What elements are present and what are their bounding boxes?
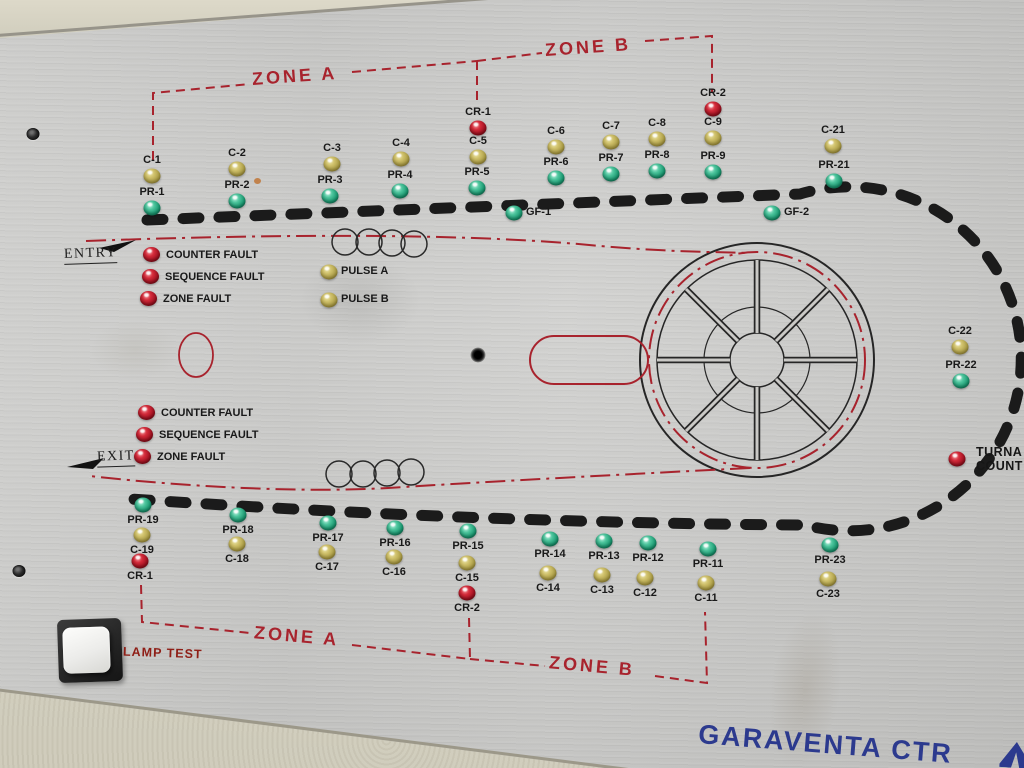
led-pr-8-lamp: [649, 164, 666, 179]
sticker-speck: [254, 178, 261, 184]
turnaround-wheel: [640, 243, 874, 477]
led-pr-3-lamp: [322, 189, 339, 204]
led-gf-2-lamp: [764, 206, 781, 221]
entry-label: ENTRY: [64, 245, 118, 265]
led-c-8-lamp: [649, 132, 666, 147]
led-c-11-lamp: [698, 576, 715, 591]
led-pr-2-lamp: [229, 194, 246, 209]
entry-fault-zone: ZONE FAULT: [140, 291, 231, 306]
led-c-15-label: C-15: [455, 572, 479, 584]
led-c-19-lamp: [134, 528, 151, 543]
entry-fault-sequence: SEQUENCE FAULT: [142, 269, 264, 284]
led-c-7-lamp: [603, 135, 620, 150]
led-cr-2-bottom-lamp: [459, 586, 476, 601]
led-c-17-lamp: [319, 545, 336, 560]
led-pulse-a-lamp: [321, 265, 338, 280]
led-pr-23-label: PR-23: [814, 554, 845, 566]
led-pr-15-lamp: [460, 524, 477, 539]
led-c-16-label: C-16: [382, 566, 406, 578]
led-c-3-label: C-3: [323, 142, 341, 154]
led-cr-2-top-lamp: [705, 102, 722, 117]
led-pr-7-lamp: [603, 167, 620, 182]
led-c-7-label: C-7: [602, 120, 620, 132]
led-c-13-lamp: [594, 568, 611, 583]
led-pr-17-lamp: [320, 516, 337, 531]
exit-sequence-fault-label: SEQUENCE FAULT: [159, 429, 258, 441]
led-c-6-lamp: [548, 140, 565, 155]
led-pr-5-lamp: [469, 181, 486, 196]
exit-zone-fault-lamp: [134, 449, 151, 464]
led-c-21-label: C-21: [821, 124, 845, 136]
led-pr-3-label: PR-3: [317, 174, 342, 186]
led-c-9-label: C-9: [704, 116, 722, 128]
led-pr-2-label: PR-2: [224, 179, 249, 191]
led-c-22-lamp: [952, 340, 969, 355]
led-c-5-lamp: [470, 150, 487, 165]
led-c-1-label: C-1: [143, 154, 161, 166]
led-pr-4-lamp: [392, 184, 409, 199]
entry-sequence-fault-lamp: [142, 269, 159, 284]
led-pr-7-label: PR-7: [598, 152, 623, 164]
led-pr-9-lamp: [705, 165, 722, 180]
led-c-15-lamp: [459, 556, 476, 571]
led-c-14-label: C-14: [536, 582, 560, 594]
exit-fault-zone: ZONE FAULT: [134, 449, 225, 464]
zone-brackets: [141, 36, 712, 683]
led-c-3-lamp: [324, 157, 341, 172]
led-c-4-lamp: [393, 152, 410, 167]
turnaround-counter-label: TURNA COUNT: [976, 445, 1023, 473]
led-c-13-label: C-13: [590, 584, 614, 596]
exit-counter-fault-label: COUNTER FAULT: [161, 407, 253, 419]
entry-sequence-fault-label: SEQUENCE FAULT: [165, 271, 264, 283]
entry-zone-fault-label: ZONE FAULT: [163, 293, 231, 305]
led-pr-22-label: PR-22: [945, 359, 976, 371]
exit-counter-fault-lamp: [138, 405, 155, 420]
led-c-12-lamp: [637, 571, 654, 586]
led-pr-8-label: PR-8: [644, 149, 669, 161]
led-c-6-label: C-6: [547, 125, 565, 137]
led-c-21-lamp: [825, 139, 842, 154]
led-pr-14-lamp: [542, 532, 559, 547]
led-c-14-lamp: [540, 566, 557, 581]
led-c-18-lamp: [229, 537, 246, 552]
screw-icon: [27, 128, 40, 140]
led-cr-2-top-label: CR-2: [700, 87, 726, 99]
led-c-23-label: C-23: [816, 588, 840, 600]
turnaround-counter-line2: COUNT: [976, 459, 1023, 473]
led-pr-21-label: PR-21: [818, 159, 849, 171]
led-c-2-label: C-2: [228, 147, 246, 159]
lamp-test-label: LAMP TEST: [123, 645, 203, 662]
entry-fault-counter: COUNTER FAULT: [143, 247, 258, 262]
led-c-1-lamp: [144, 169, 161, 184]
led-pr-23-lamp: [822, 538, 839, 553]
led-c-9-lamp: [705, 131, 722, 146]
entry-zone-fault-lamp: [140, 291, 157, 306]
screw-icon: [13, 565, 26, 577]
led-pr-6-lamp: [548, 171, 565, 186]
led-c-23-lamp: [820, 572, 837, 587]
led-c-16-lamp: [386, 550, 403, 565]
led-pr-18-lamp: [230, 508, 247, 523]
track-path: [131, 187, 1021, 531]
lamp-test-switch-bezel: [57, 618, 123, 683]
led-cr-1-top-label: CR-1: [465, 106, 491, 118]
led-gf-1-label: GF-1: [526, 206, 551, 218]
led-pr-9-label: PR-9: [700, 150, 725, 162]
exit-fault-sequence: SEQUENCE FAULT: [136, 427, 258, 442]
led-pulse-a-label: PULSE A: [341, 265, 388, 277]
led-pr-12-lamp: [640, 536, 657, 551]
led-pr-16-lamp: [387, 521, 404, 536]
led-cr-1-bottom-lamp: [132, 554, 149, 569]
led-cr-1-bottom-label: CR-1: [127, 570, 153, 582]
led-c-18-label: C-18: [225, 553, 249, 565]
red-outlines: [179, 333, 648, 384]
led-pr-17-label: PR-17: [312, 532, 343, 544]
led-c-5-label: C-5: [469, 135, 487, 147]
led-gf-2-label: GF-2: [784, 206, 809, 218]
led-c-4-label: C-4: [392, 137, 410, 149]
led-pr-11-lamp: [700, 542, 717, 557]
led-cr-1-top-lamp: [470, 121, 487, 136]
led-pr-16-label: PR-16: [379, 537, 410, 549]
led-turnaround-counter-lamp: [949, 452, 966, 467]
led-cr-2-bottom-label: CR-2: [454, 602, 480, 614]
led-pulse-b-label: PULSE B: [341, 293, 389, 305]
panel-photo: ZONE A ZONE B ZONE A ZONE B ENTRY COUNTE…: [0, 0, 1024, 768]
exit-sequence-fault-lamp: [136, 427, 153, 442]
led-c-17-label: C-17: [315, 561, 339, 573]
entry-counter-fault-lamp: [143, 247, 160, 262]
led-pr-6-label: PR-6: [543, 156, 568, 168]
led-pr-15-label: PR-15: [452, 540, 483, 552]
led-pr-1-lamp: [144, 201, 161, 216]
led-pulse-b-lamp: [321, 293, 338, 308]
led-pr-19-label: PR-19: [127, 514, 158, 526]
led-c-12-label: C-12: [633, 587, 657, 599]
mounting-hole: [470, 348, 486, 363]
exit-zone-fault-label: ZONE FAULT: [157, 451, 225, 463]
led-c-11-label: C-11: [694, 592, 717, 604]
exit-fault-counter: COUNTER FAULT: [138, 405, 253, 420]
exit-label: EXIT: [97, 448, 135, 467]
led-gf-1-lamp: [506, 206, 523, 221]
led-pr-14-label: PR-14: [534, 548, 565, 560]
turnaround-counter-line1: TURNA: [976, 445, 1022, 459]
led-c-2-lamp: [229, 162, 246, 177]
control-panel: ZONE A ZONE B ZONE A ZONE B ENTRY COUNTE…: [0, 0, 1024, 768]
led-pr-13-label: PR-13: [588, 550, 619, 562]
entry-counter-fault-label: COUNTER FAULT: [166, 249, 258, 261]
led-pr-22-lamp: [953, 374, 970, 389]
led-pr-5-label: PR-5: [464, 166, 489, 178]
led-pr-11-label: PR-11: [693, 558, 724, 570]
led-c-8-label: C-8: [648, 117, 666, 129]
led-c-22-label: C-22: [948, 325, 972, 337]
led-pr-12-label: PR-12: [632, 552, 663, 564]
led-pr-4-label: PR-4: [387, 169, 412, 181]
led-pr-13-lamp: [596, 534, 613, 549]
led-pr-21-lamp: [826, 174, 843, 189]
led-pr-18-label: PR-18: [222, 524, 253, 536]
lamp-test-button[interactable]: [62, 626, 111, 674]
led-pr-19-lamp: [135, 498, 152, 513]
led-pr-1-label: PR-1: [139, 186, 164, 198]
